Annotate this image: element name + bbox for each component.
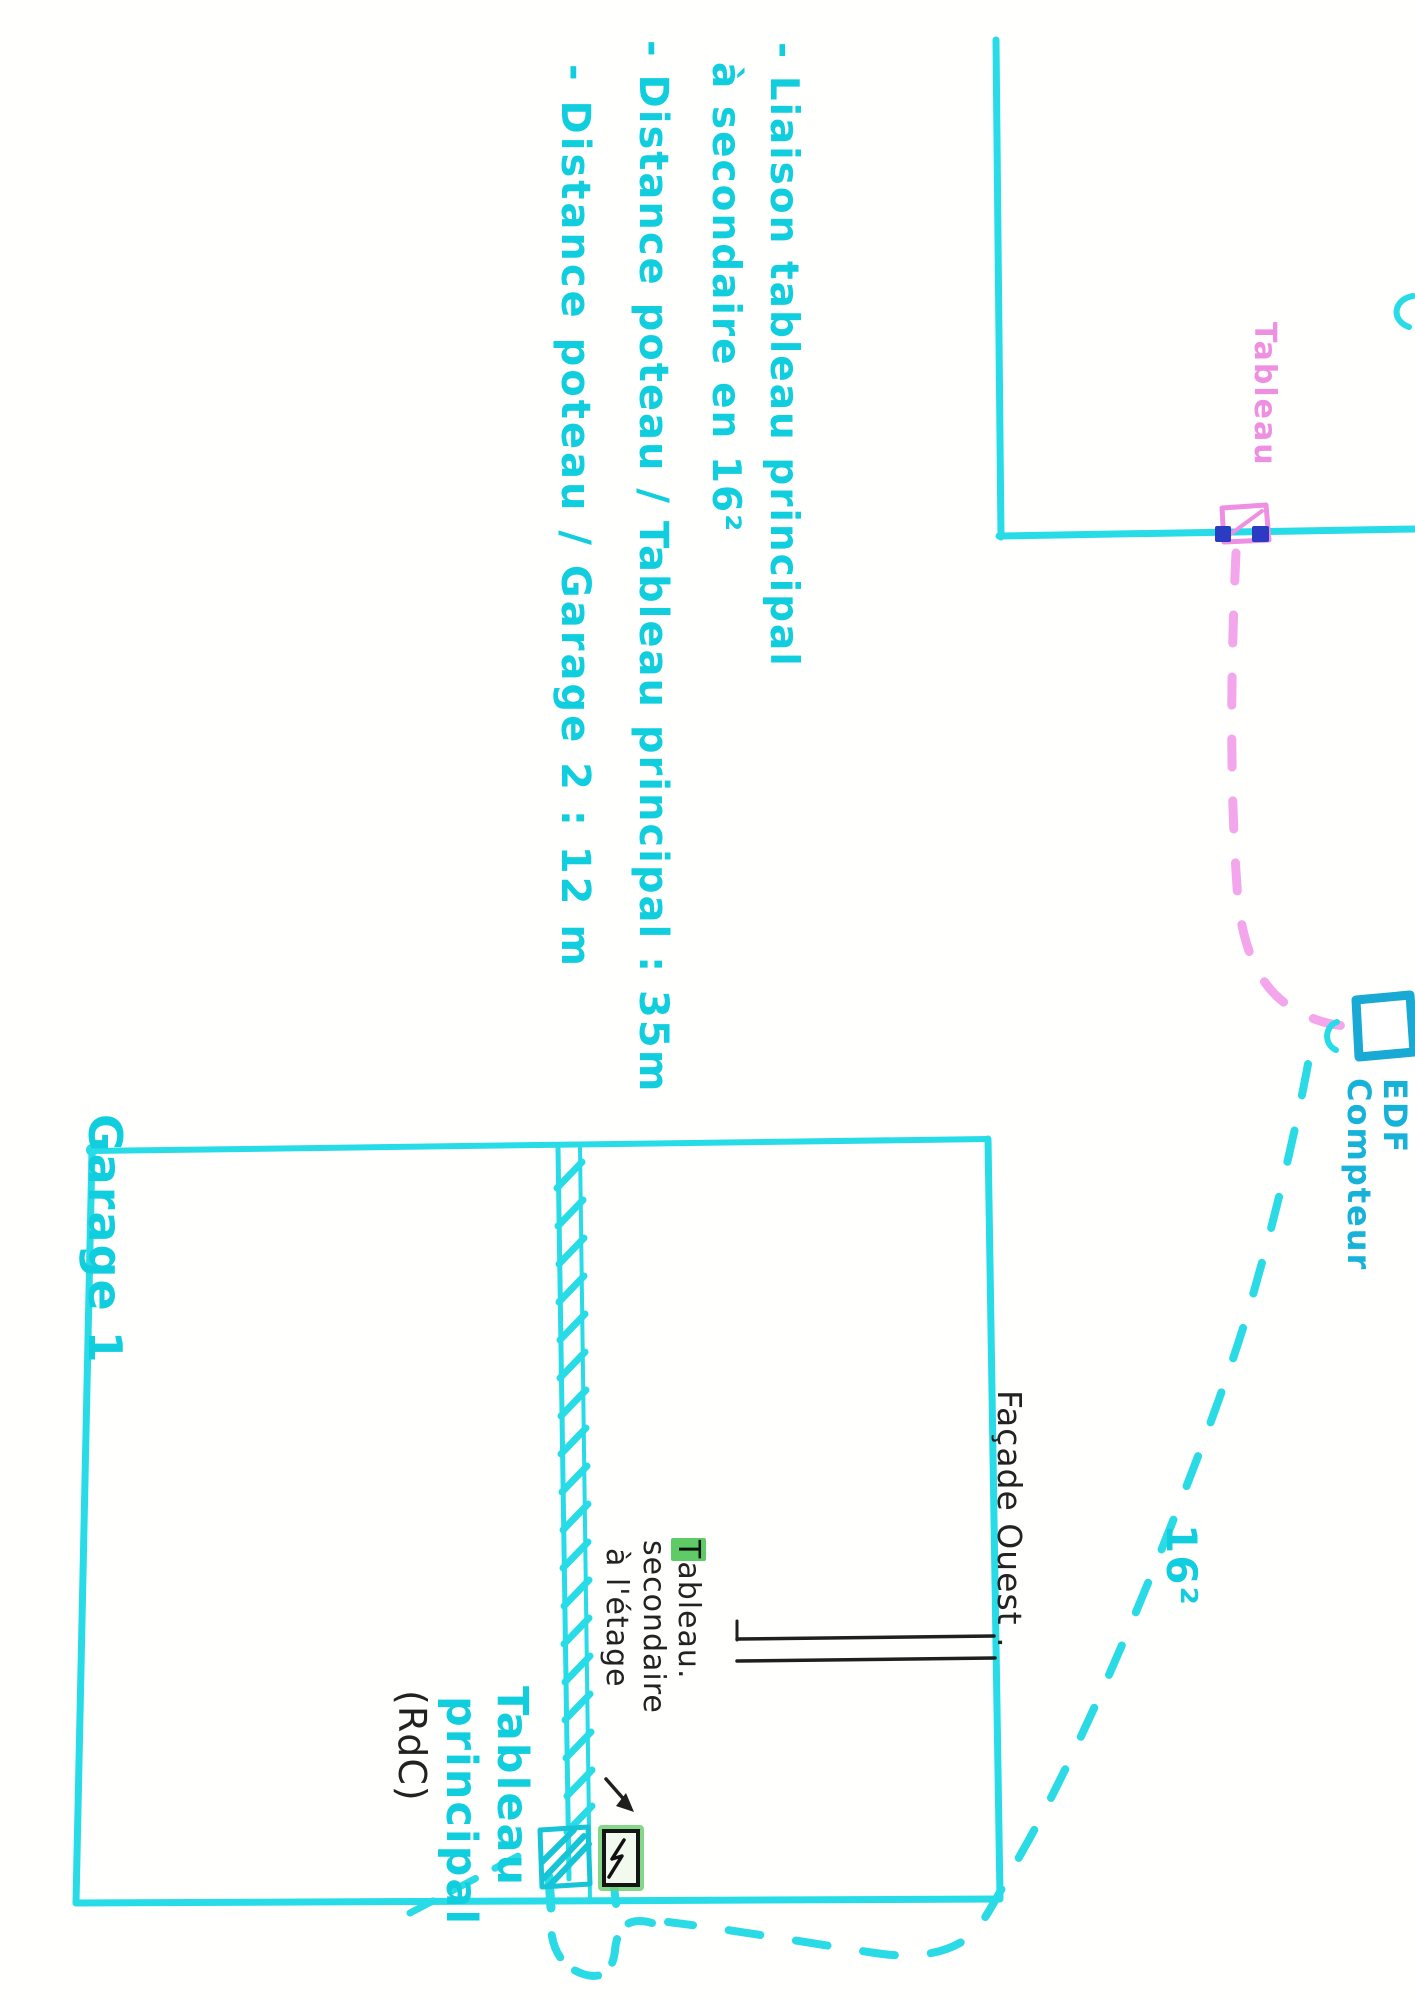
note-line-distance-12m: - Distance poteau / Garage 2 : 12 m — [552, 64, 598, 969]
garage1-wall-south — [76, 1899, 1000, 1903]
facade-ouest-label: Façade Ouest . — [990, 1390, 1029, 1649]
cyan-dashed-cable-hook — [551, 1916, 652, 1976]
edf-meter-box — [1356, 995, 1414, 1057]
secondary-board-label-line2: secondaire — [636, 1540, 671, 1714]
secondary-box-highlight — [598, 1825, 644, 1891]
cyan-dashed-cable-16mm — [668, 1064, 1308, 1955]
edf-connector-bracket — [1327, 1022, 1337, 1050]
main-board-wall-marker — [540, 1827, 590, 1887]
partition-wall-left-line — [558, 1148, 569, 1879]
secondary-board-label-line1-rest: ableau. — [671, 1561, 706, 1679]
upper-building-south-wall — [999, 529, 1415, 536]
cable-riser-to-secondary-box — [614, 1886, 616, 1904]
upper-building-west-wall — [996, 40, 1001, 537]
note-line-liaison: - Liaison tableau principal — [761, 42, 806, 668]
garage1-wall-north — [92, 1139, 988, 1151]
partition-wall-hatching — [557, 1162, 592, 1832]
partition-wall-right-line — [580, 1148, 590, 1901]
arrow-head — [616, 1793, 634, 1812]
compteur-label: Compteur — [1340, 1078, 1378, 1271]
secondary-box-outline — [604, 1831, 638, 1885]
navy-fixing-mark-left — [1215, 526, 1231, 542]
scanned-sketch-page: - Liaison tableau principal à secondaire… — [0, 0, 1415, 2000]
edf-label: EDF — [1376, 1078, 1414, 1154]
pink-dashed-cable — [1232, 553, 1350, 1026]
secondary-board-label-line3: à l'étage — [599, 1548, 634, 1688]
note-line-section: à secondaire en 16² — [703, 62, 748, 533]
rdc-label: (RdC) — [390, 1690, 434, 1802]
secondary-board-label-line1: Tableau. — [671, 1538, 706, 1679]
opening-line-upper — [737, 1636, 994, 1639]
lightning-icon — [609, 1840, 624, 1877]
cable-riser-to-wall-marker — [549, 1877, 551, 1908]
main-board-marker-hatching — [542, 1830, 589, 1886]
navy-fixing-mark-right — [1252, 526, 1269, 542]
note-line-distance-35m: - Distance poteau / Tableau principal : … — [630, 40, 676, 1093]
upper-board-label: Tableau — [1247, 322, 1282, 467]
upper-board-square-diagonal — [1228, 511, 1262, 536]
arrow-icon — [606, 1779, 628, 1804]
main-board-label-line2: principal — [436, 1696, 486, 1926]
garage1-label: Garage 1 — [78, 1114, 132, 1365]
clipped-letter-fragment — [1397, 296, 1413, 327]
highlighted-letter: T — [671, 1538, 706, 1561]
main-board-label-line1: Tableau — [487, 1686, 537, 1887]
upper-board-square — [1222, 505, 1269, 542]
cable-section-label: 16² — [1157, 1524, 1206, 1607]
opening-line-lower — [737, 1658, 995, 1661]
